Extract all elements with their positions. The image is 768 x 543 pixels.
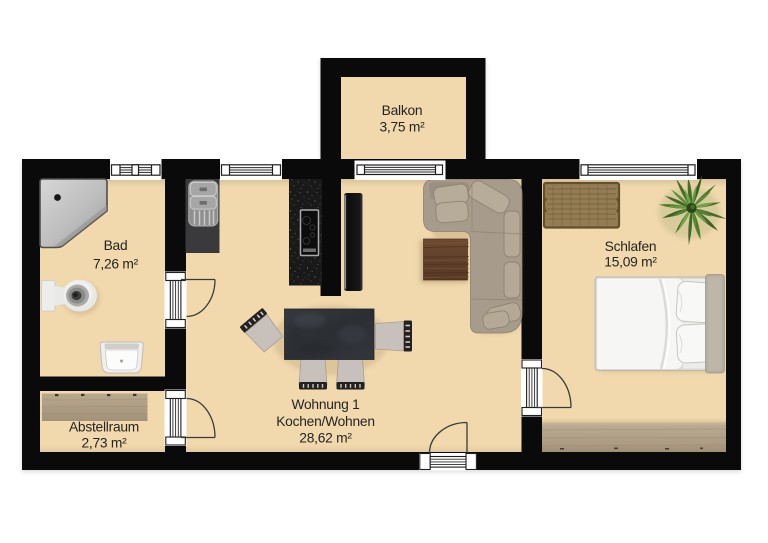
svg-text:Wohnung 1: Wohnung 1 <box>291 397 359 412</box>
svg-text:Balkon: Balkon <box>382 103 423 118</box>
svg-text:28,62 m²: 28,62 m² <box>299 431 352 446</box>
svg-text:3,75 m²: 3,75 m² <box>379 120 425 135</box>
svg-text:Kochen/Wohnen: Kochen/Wohnen <box>276 414 375 429</box>
svg-text:15,09 m²: 15,09 m² <box>604 255 657 270</box>
svg-text:Schlafen: Schlafen <box>605 239 657 254</box>
svg-text:Abstellraum: Abstellraum <box>69 420 139 435</box>
svg-text:7,26 m²: 7,26 m² <box>93 257 139 272</box>
svg-text:Bad: Bad <box>104 238 128 253</box>
svg-text:2,73 m²: 2,73 m² <box>81 436 127 451</box>
